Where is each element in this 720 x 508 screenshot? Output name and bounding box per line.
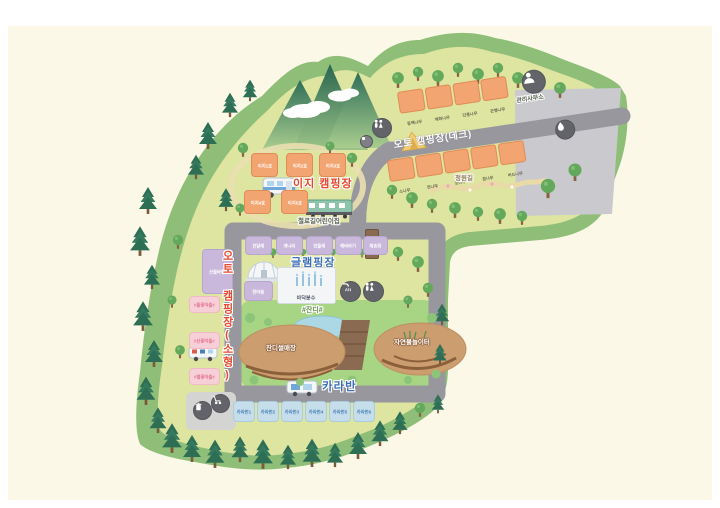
water-tap-icon <box>554 118 577 141</box>
easy-camping-site: 이지5호 <box>281 190 308 214</box>
easy-camping-title: 이지 캠핑장 <box>293 179 353 190</box>
office-icon <box>520 68 547 95</box>
glamping-site: 채송화 <box>363 236 388 255</box>
garden-path-label: 정원길 <box>455 176 473 183</box>
campground-map: 이지 캠핑장 이지1호 이지2호 이지3호 이지4호 이지5호 철로길어린이집 … <box>0 0 720 508</box>
auto-small-road-label: 오토 캠핑장(소형) <box>221 250 232 395</box>
caravan-site: 카라반3 <box>281 401 303 422</box>
glamping-site: 해바라기 <box>335 236 362 255</box>
auto-small-site: #별꽃마을# <box>189 368 220 385</box>
office-label: 관리사무소 <box>516 94 544 104</box>
auto-deck-area: 오토 캠핑장(데크) 동백나무 매화나무 단풍나무 은행나무 소나무 전나무 잣… <box>371 49 640 234</box>
caravan-title: 카라반 <box>322 382 357 394</box>
glamping-site: 진달래 <box>245 236 272 255</box>
easy-camping-site: 이지1호 <box>251 153 278 177</box>
fountain-label: 바닥분수 <box>297 294 316 302</box>
caravan-site: 카라반4 <box>305 401 327 422</box>
glamping-annex: 한마음 <box>244 281 273 301</box>
fountain-icon <box>287 271 327 287</box>
cart-icon <box>211 394 230 413</box>
glamping-site: 민들레 <box>306 236 333 255</box>
deck-site: 은행나무 <box>479 76 513 120</box>
play-mound-label: 자연물놀이터 <box>394 340 430 347</box>
sled-mound-label: 잔디썰매장 <box>266 346 296 353</box>
glamping-site: 개나리 <box>276 236 303 255</box>
caravan-site: 카라반5 <box>329 401 351 422</box>
restroom-icon <box>372 118 392 138</box>
auto-small-site: #들꽃마을# <box>189 296 220 313</box>
easy-camping-site: 이지3호 <box>319 153 346 177</box>
train-daycare-label: 철로길어린이집 <box>298 219 340 226</box>
lawn-label: #잔디# <box>302 307 323 314</box>
caravan-site: 카라반6 <box>353 401 375 422</box>
road-sign-icon <box>360 135 373 148</box>
trash-icon <box>193 401 212 420</box>
auto-deck-road-label: 오토 캠핑장(데크) <box>393 130 472 152</box>
easy-camping-site: 이지2호 <box>286 153 313 177</box>
toilet-icon <box>363 281 384 302</box>
deck-site: 버드나무 <box>497 140 531 184</box>
floor-fountain: 바닥분수 <box>277 267 336 304</box>
caravan-site: 카라반1 <box>233 401 255 422</box>
auto-small-site: #산꽃마을# <box>189 332 220 349</box>
easy-camping-site: 이지4호 <box>244 190 271 214</box>
shower-icon <box>340 281 361 302</box>
caravan-site: 카라반2 <box>257 401 279 422</box>
